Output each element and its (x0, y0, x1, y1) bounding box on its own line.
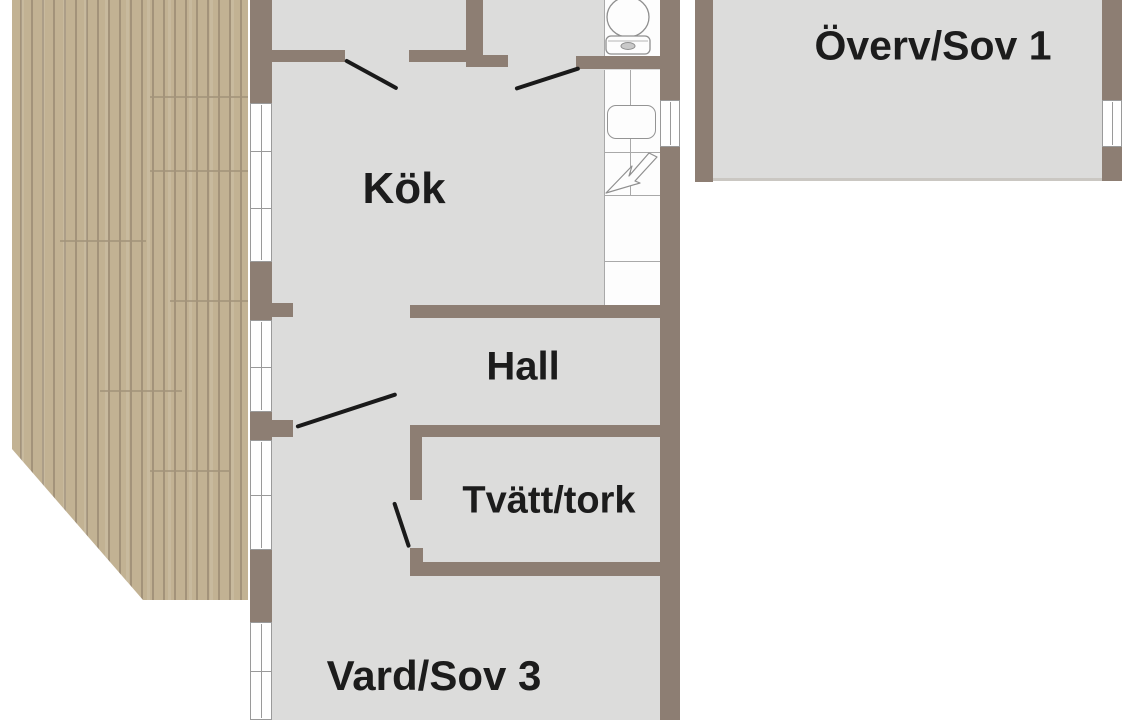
wood-deck (0, 0, 248, 604)
window (250, 103, 272, 262)
wall-stub (272, 420, 293, 437)
wall-segment (410, 305, 660, 318)
main-floor (272, 0, 660, 720)
floor-cut-edge (713, 178, 1102, 181)
wall-segment (250, 550, 272, 622)
floor-plan-canvas: Kök Hall Tvätt/tork Vard/Sov 3 Överv/Sov… (0, 0, 1125, 720)
deck-plank-joint (60, 240, 146, 242)
window (1102, 100, 1122, 147)
wall-stub (410, 548, 423, 562)
room-label-overv: Överv/Sov 1 (814, 23, 1051, 70)
wall-segment (660, 0, 680, 100)
deck-plank-joint (170, 300, 248, 302)
wall-segment (250, 0, 272, 103)
wall-segment (695, 0, 713, 182)
deck-plank-joint (150, 470, 230, 472)
wall-segment (410, 425, 660, 437)
deck-plank-joint (150, 170, 248, 172)
wall-segment (1102, 0, 1122, 100)
room-label-kok: Kök (362, 164, 445, 214)
wall-segment (483, 55, 508, 67)
wall-segment (660, 147, 680, 720)
lightning-icon (602, 148, 660, 197)
toilet-icon (604, 0, 652, 58)
wall-segment (466, 0, 483, 67)
wall-segment (1102, 147, 1122, 181)
room-label-hall: Hall (486, 345, 559, 390)
wall-segment (410, 425, 422, 500)
wall-segment (272, 50, 345, 62)
window (250, 622, 272, 720)
window (250, 320, 272, 412)
wall-segment (576, 56, 664, 69)
wall-segment (410, 562, 660, 576)
room-label-vard: Vard/Sov 3 (327, 652, 542, 700)
room-label-tvatt: Tvätt/tork (462, 480, 635, 523)
sink-icon (607, 105, 656, 139)
wall-segment (250, 412, 272, 440)
wall-segment (409, 50, 466, 62)
window (660, 100, 680, 147)
window (250, 440, 272, 550)
bathroom-divider (604, 261, 660, 262)
wall-segment (250, 262, 272, 320)
deck-plank-joint (100, 390, 182, 392)
deck-plank-joint (150, 96, 248, 98)
wall-stub (272, 303, 293, 317)
